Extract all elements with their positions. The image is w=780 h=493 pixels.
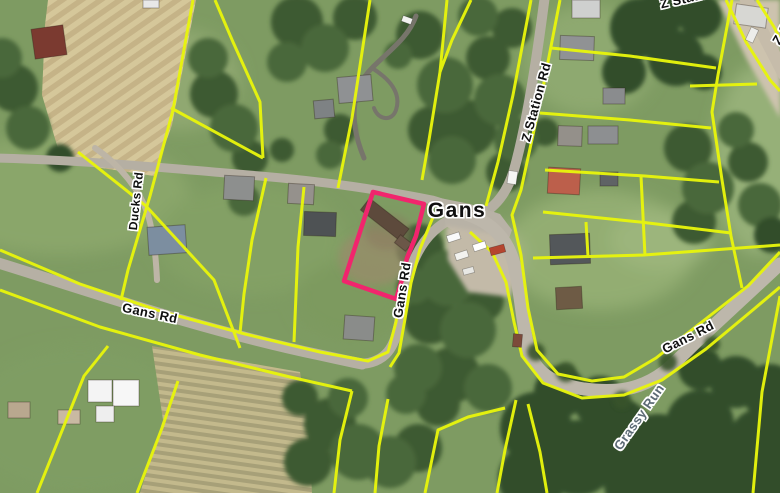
map-viewport[interactable]: GansGans RdGans RdGans RdZ Station RdDuc… xyxy=(0,0,780,493)
aerial-basemap xyxy=(0,0,780,493)
